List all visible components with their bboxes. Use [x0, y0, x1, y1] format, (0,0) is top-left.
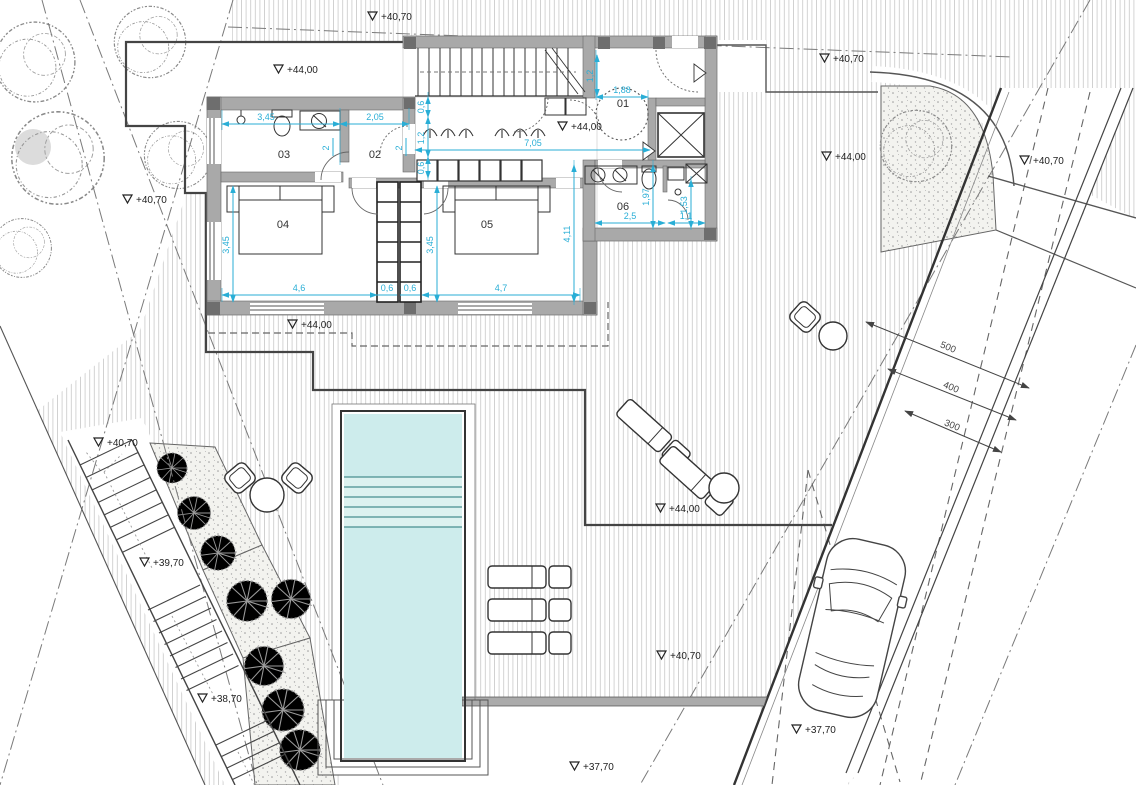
elevation-label: +44,00	[301, 320, 332, 331]
dimension-label: 1,2	[585, 70, 595, 83]
dimension-label: 2,05	[366, 112, 384, 122]
dimension-label: 1,2	[416, 132, 426, 145]
dimension-label: 0,6	[381, 283, 394, 293]
dimension-label: 4,6	[293, 283, 306, 293]
dimension-label: 1,88	[613, 85, 631, 95]
elevator	[658, 113, 704, 157]
elevation-label: +40,70	[670, 651, 701, 662]
elevation-label: +40,70	[1033, 156, 1064, 167]
dimension-label: 2,5	[624, 211, 637, 221]
elevation-label: +40,70	[107, 438, 138, 449]
dimension-label: 3,45	[257, 112, 275, 122]
room-label: 04	[277, 219, 289, 231]
elevation-label: +37,70	[805, 725, 836, 736]
elevation-label: +44,00	[287, 65, 318, 76]
elevation-label: +40,70	[381, 12, 412, 23]
elevation-label: +44,00	[571, 122, 602, 133]
dimension-label: 4,11	[562, 226, 572, 243]
floor-plan-drawing: +40,70+44,00+40,70+44,00+44,00+40,70+40,…	[0, 0, 1136, 785]
dimension-label: 1,53	[679, 196, 689, 214]
pool-step-zone	[344, 477, 462, 527]
dimension-label: 3,45	[221, 236, 231, 254]
room-label: 02	[369, 149, 381, 161]
elevation-label: +40,70	[833, 54, 864, 65]
dimension-label: 2	[321, 145, 331, 150]
dimension-label: 4,7	[495, 283, 508, 293]
dimension-label: 7,05	[524, 138, 542, 148]
floor-plan-canvas: +40,70+44,00+40,70+44,00+44,00+40,70+40,…	[0, 0, 1136, 785]
elevation-label: +39,70	[153, 558, 184, 569]
pool-water	[344, 414, 462, 758]
dimension-label: 0,6	[416, 162, 426, 175]
elevation-label: +40,70	[136, 195, 167, 206]
elevation-label: +44,00	[835, 152, 866, 163]
dimension-label: 0,6	[404, 283, 417, 293]
loungers-row	[488, 566, 571, 654]
corridor-cabinets	[417, 160, 542, 181]
elevation-label: +38,70	[211, 694, 242, 705]
dimension-label: 2	[394, 145, 404, 150]
room-label: 03	[278, 149, 290, 161]
dimension-label: 3,45	[425, 236, 435, 254]
dimension-label: 0,6	[416, 101, 426, 114]
elevation-label: +44,00	[669, 504, 700, 515]
room-label: 01	[617, 98, 629, 110]
elevation-label: +37,70	[583, 762, 614, 773]
tree-shadow	[15, 129, 51, 165]
dimension-label: 1,97	[641, 188, 651, 206]
room-label: 05	[481, 219, 493, 231]
